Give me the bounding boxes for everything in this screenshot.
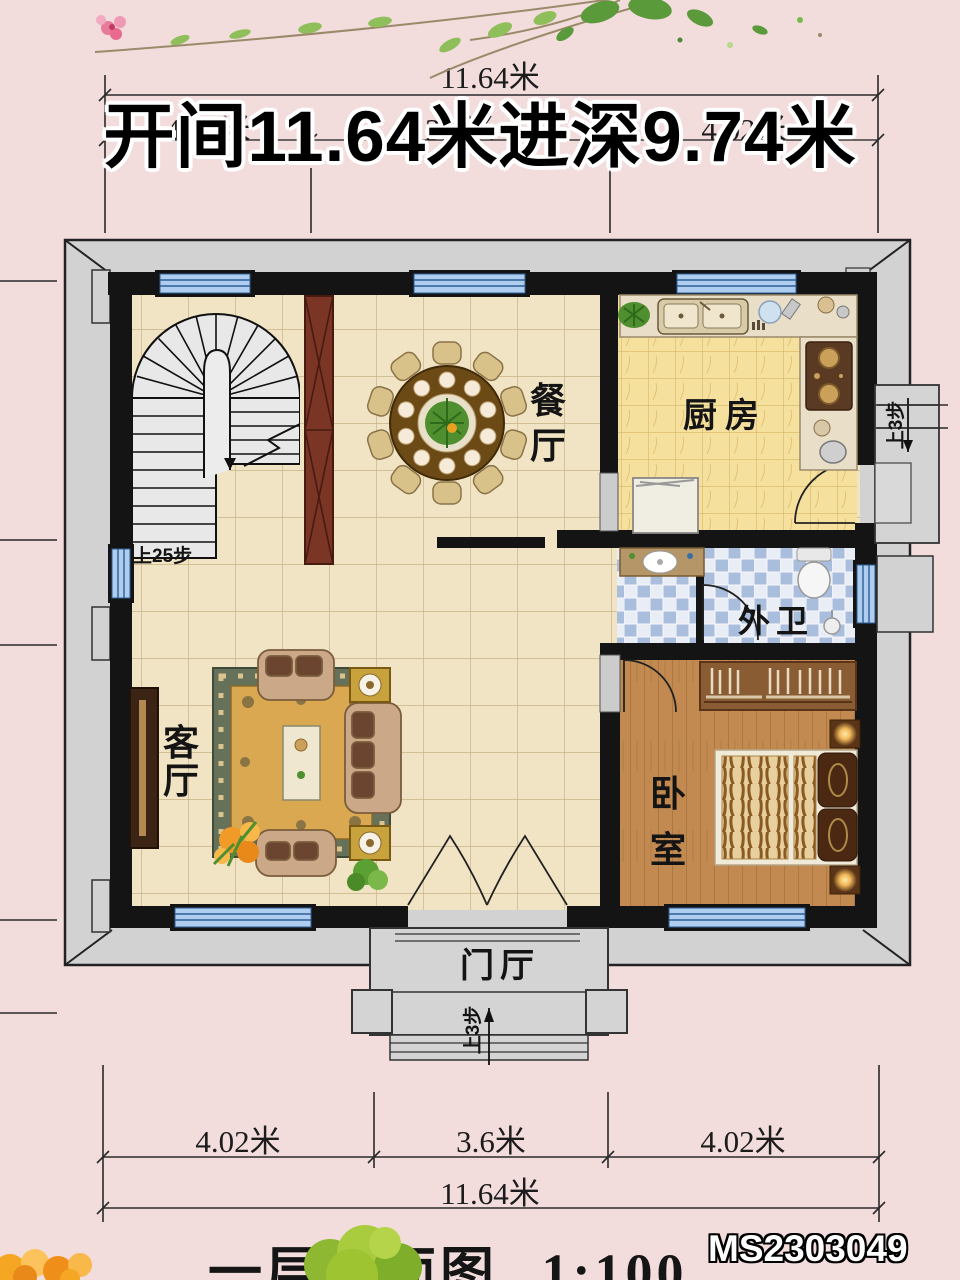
room-label-kitchen: 厨房 bbox=[683, 388, 767, 437]
porch-steps-label: 上3步 bbox=[458, 995, 482, 1065]
wardrobe-icon bbox=[700, 662, 856, 710]
floor-plan-poster: 11.64米 4.02米 3.6米 4.02米 开间11.64米进深9.74米 … bbox=[0, 0, 960, 1280]
stairs-steps-label: 上25步 bbox=[133, 541, 192, 568]
bottom-dimension-total: 11.64米 bbox=[400, 1168, 580, 1213]
toilet-icon bbox=[797, 548, 831, 598]
orange-flowers-icon bbox=[0, 1249, 92, 1280]
bedroom-west-wall bbox=[600, 712, 620, 908]
kitchen-entry-threshold bbox=[600, 473, 618, 531]
page-title: 开间11.64米进深9.74米 bbox=[0, 80, 960, 182]
room-label-living: 客厅 bbox=[161, 724, 201, 800]
bedroom-door-threshold bbox=[600, 655, 620, 712]
porch-column-left bbox=[352, 990, 392, 1033]
bathroom-bedroom-wall bbox=[600, 643, 857, 660]
room-label-foyer: 门厅 bbox=[440, 938, 560, 987]
tv-cabinet bbox=[130, 688, 158, 848]
bed-icon bbox=[715, 750, 857, 865]
watermark: MS2303049 bbox=[708, 1228, 908, 1270]
side-table-top bbox=[350, 668, 390, 702]
porch-column-right bbox=[586, 990, 627, 1033]
kitchen-lamp-icon bbox=[759, 301, 781, 323]
window-stairs bbox=[155, 270, 255, 297]
wall-stub bbox=[437, 537, 545, 548]
sofa-right bbox=[345, 703, 401, 813]
side-steps-label: 上3步 bbox=[881, 390, 905, 460]
lamp-glow-top bbox=[833, 722, 857, 746]
bottom-dimension-seg-3: 4.02米 bbox=[663, 1116, 823, 1161]
room-label-dining: 餐厅 bbox=[528, 378, 568, 468]
room-label-bathroom: 外卫 bbox=[738, 596, 838, 642]
kitchen-west-wall bbox=[600, 293, 618, 473]
floral-decoration-top bbox=[0, 0, 960, 80]
window-dining bbox=[409, 270, 530, 297]
bedroom-furniture bbox=[700, 662, 860, 894]
pink-flower-icon bbox=[96, 15, 126, 40]
window-living bbox=[170, 904, 316, 931]
coffee-table bbox=[283, 726, 320, 800]
bottom-dimension-seg-1: 4.02米 bbox=[158, 1116, 318, 1161]
staircase bbox=[132, 295, 300, 561]
window-bathroom bbox=[853, 560, 879, 628]
kitchen-south-wall bbox=[557, 530, 857, 548]
window-left bbox=[108, 544, 134, 603]
room-label-bedroom: 卧室 bbox=[648, 766, 688, 878]
window-bedroom bbox=[664, 904, 810, 931]
sofa-bottom bbox=[256, 830, 336, 876]
lamp-glow-bottom bbox=[833, 868, 857, 892]
bottom-dimension-seg-2: 3.6米 bbox=[411, 1116, 571, 1161]
sofa-top bbox=[258, 650, 334, 700]
cabinet bbox=[305, 296, 333, 564]
bush-icon bbox=[304, 1225, 422, 1280]
window-kitchen bbox=[672, 270, 801, 297]
side-table-bottom bbox=[350, 826, 390, 860]
